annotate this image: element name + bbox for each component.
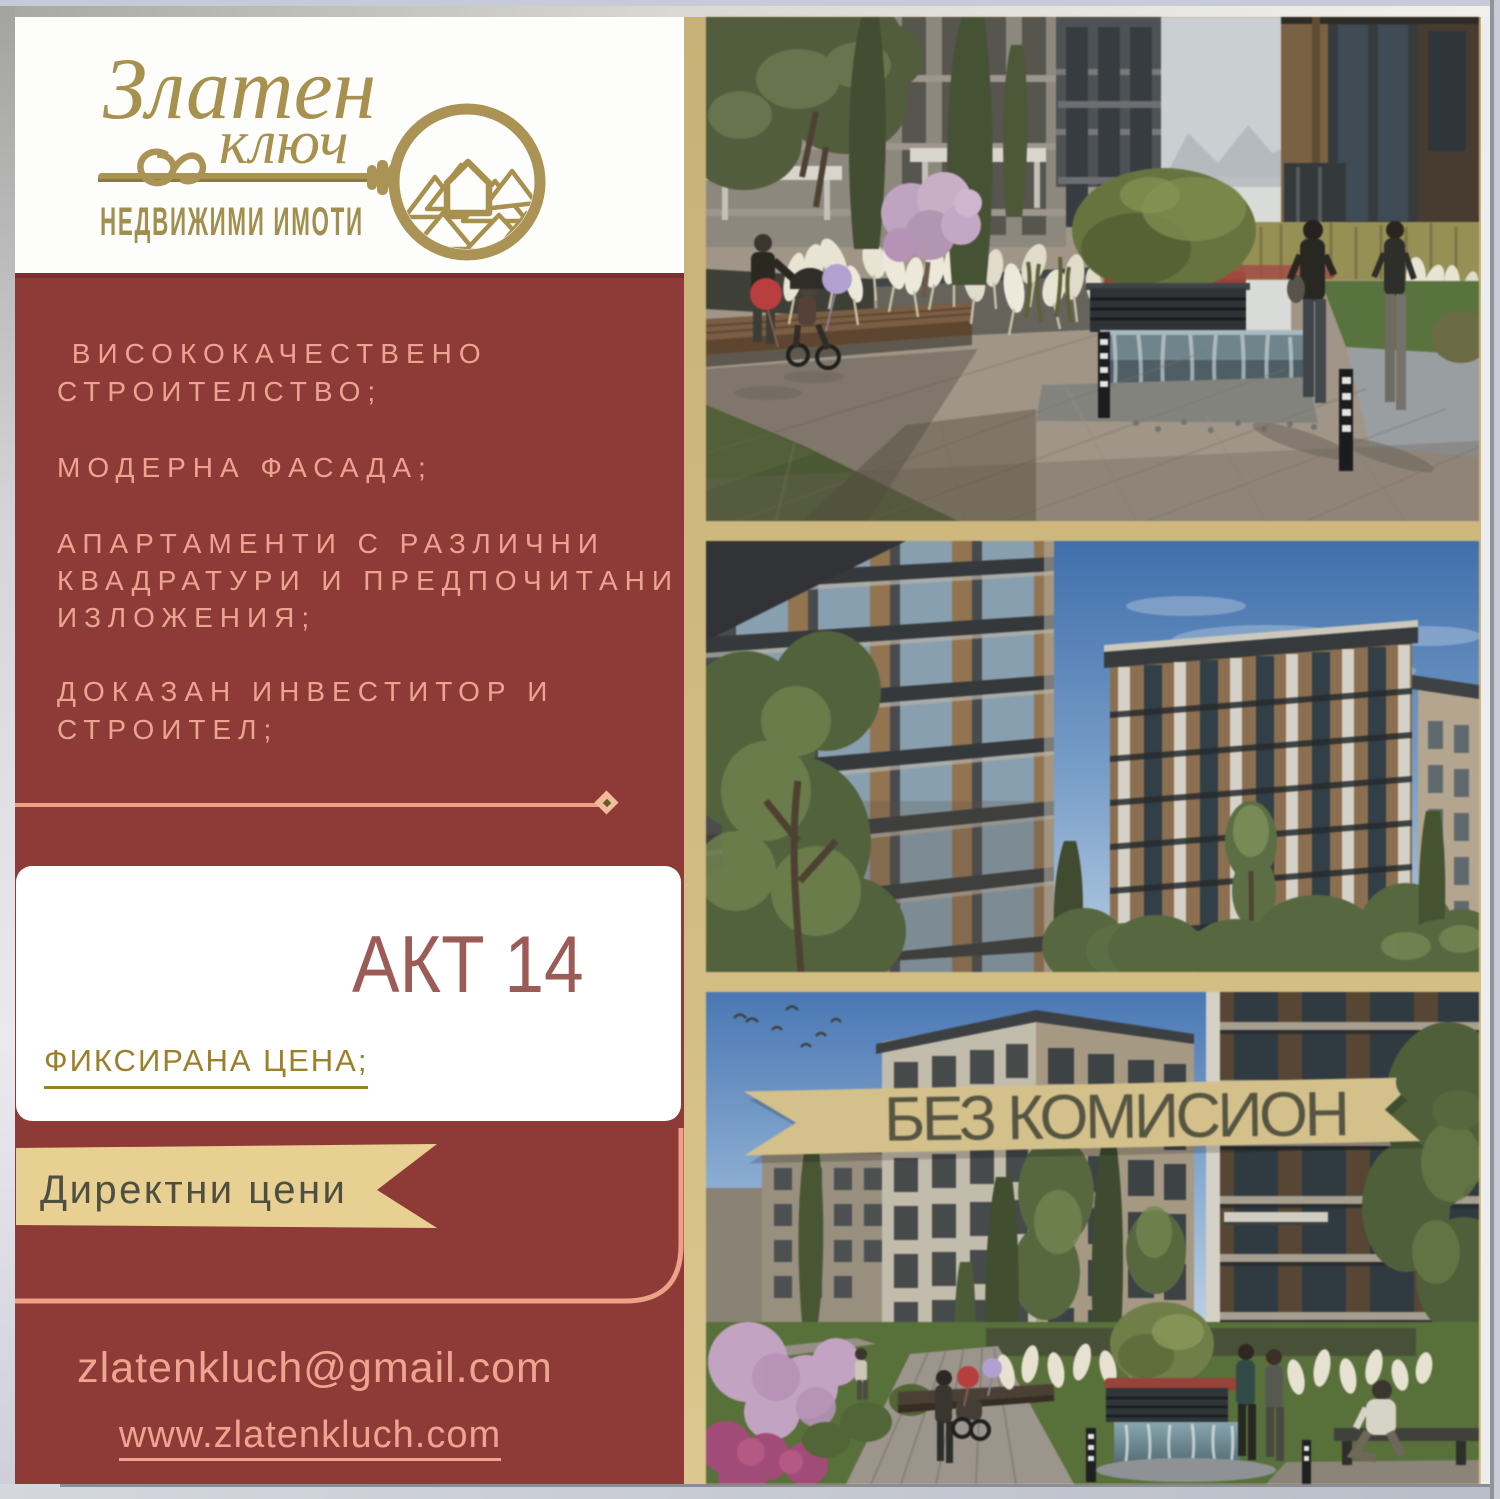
svg-text:БЕЗ КОМИСИОН: БЕЗ КОМИСИОН [884, 1079, 1351, 1155]
svg-text:ключ: ключ [219, 109, 349, 177]
svg-text:НЕДВИЖИМИ ИМОТИ: НЕДВИЖИМИ ИМОТИ [100, 199, 364, 243]
